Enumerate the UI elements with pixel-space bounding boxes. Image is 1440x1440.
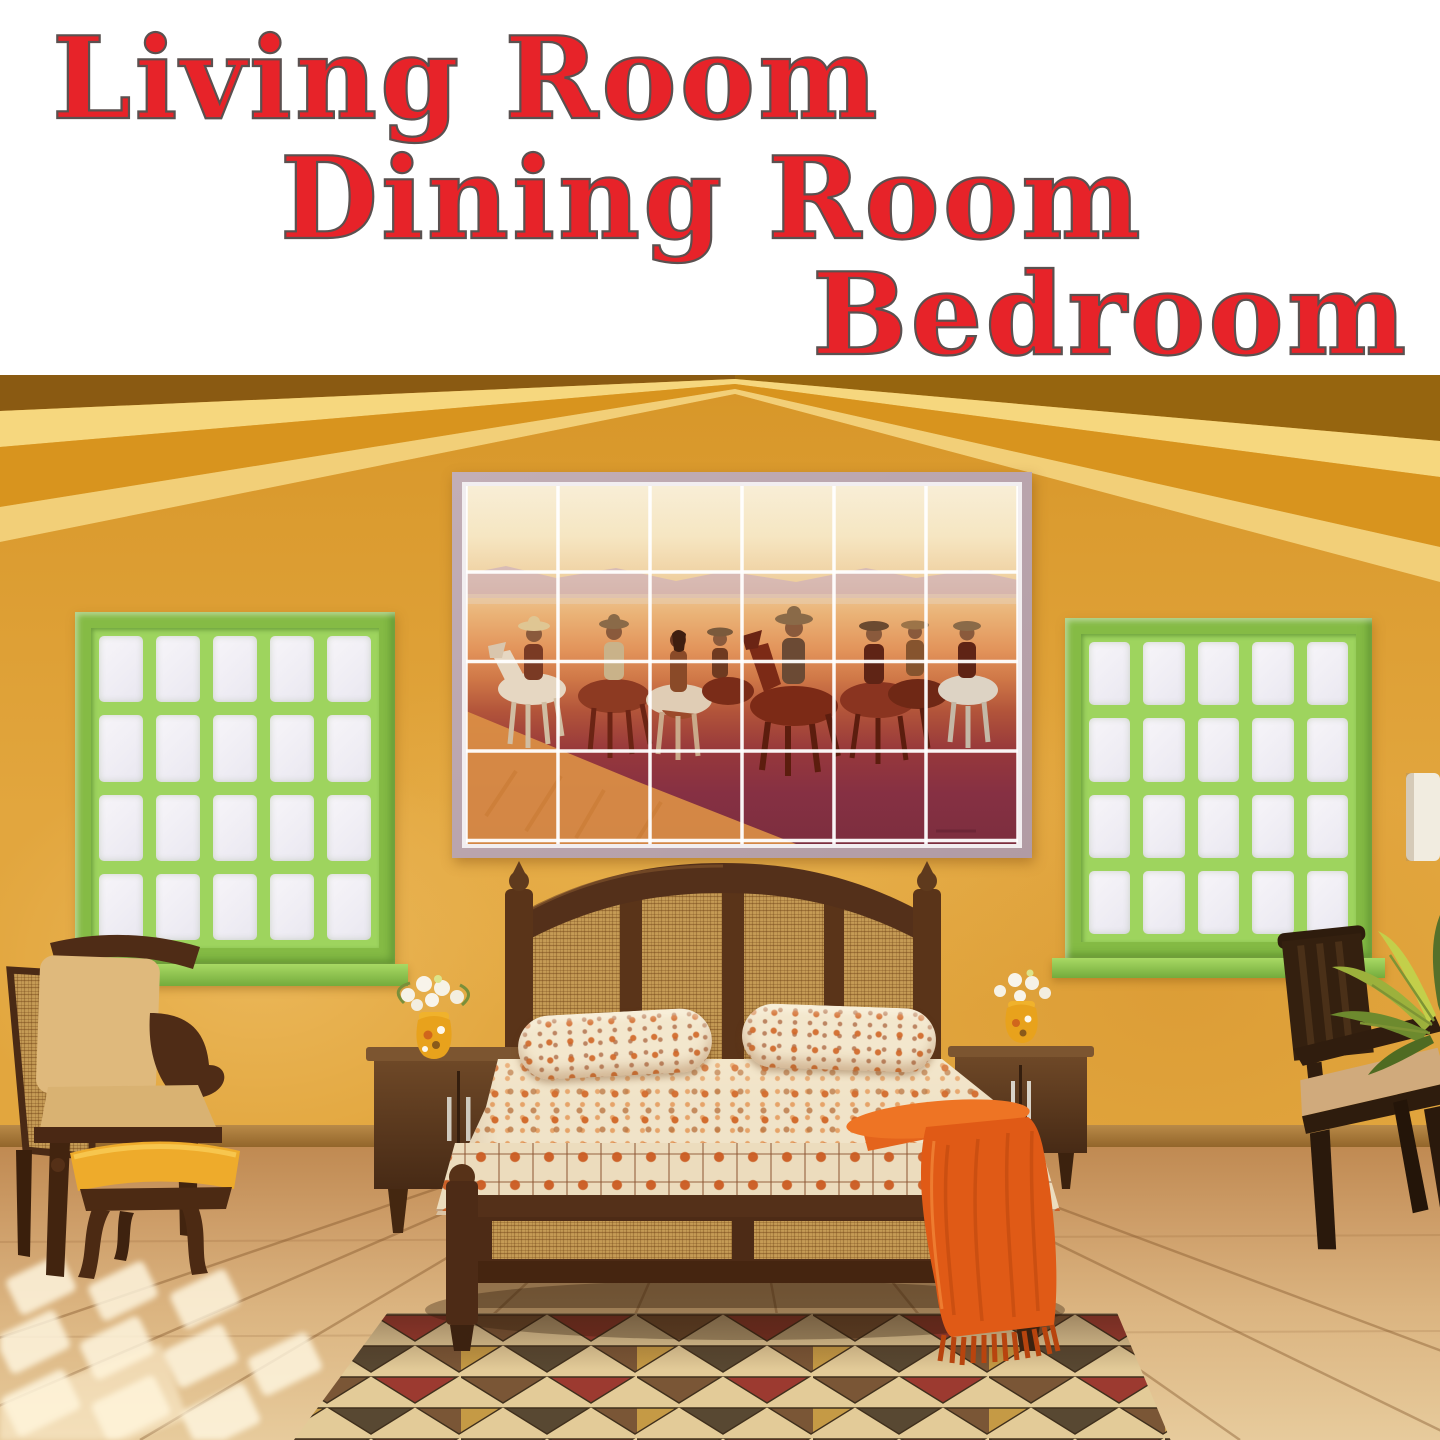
front-furniture bbox=[0, 375, 1440, 1440]
white-lampshade bbox=[1406, 773, 1440, 861]
yellow-footstool bbox=[70, 1141, 240, 1279]
title-dining-room: Dining Room bbox=[280, 142, 1144, 255]
title-living-room: Living Room bbox=[52, 22, 881, 135]
dark-side-chair bbox=[1277, 918, 1440, 1252]
bedroom-photo bbox=[0, 375, 1440, 1440]
title-bedroom: Bedroom bbox=[812, 258, 1409, 371]
